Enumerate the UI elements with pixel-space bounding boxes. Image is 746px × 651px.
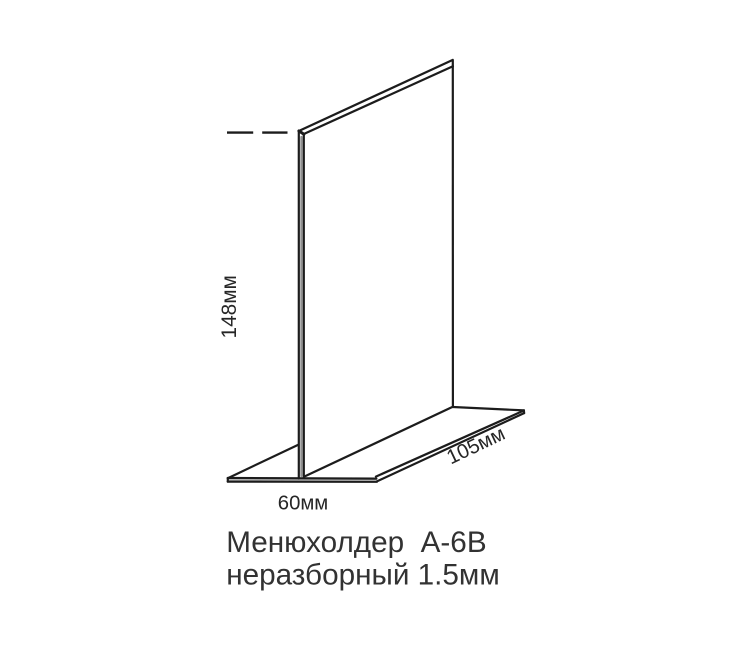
svg-text:Менюхолдер А-6В: Менюхолдер А-6В [226,526,486,559]
svg-text:148мм: 148мм [218,275,241,338]
svg-text:60мм: 60мм [278,492,328,514]
svg-text:неразборный 1.5мм: неразборный 1.5мм [226,559,500,592]
